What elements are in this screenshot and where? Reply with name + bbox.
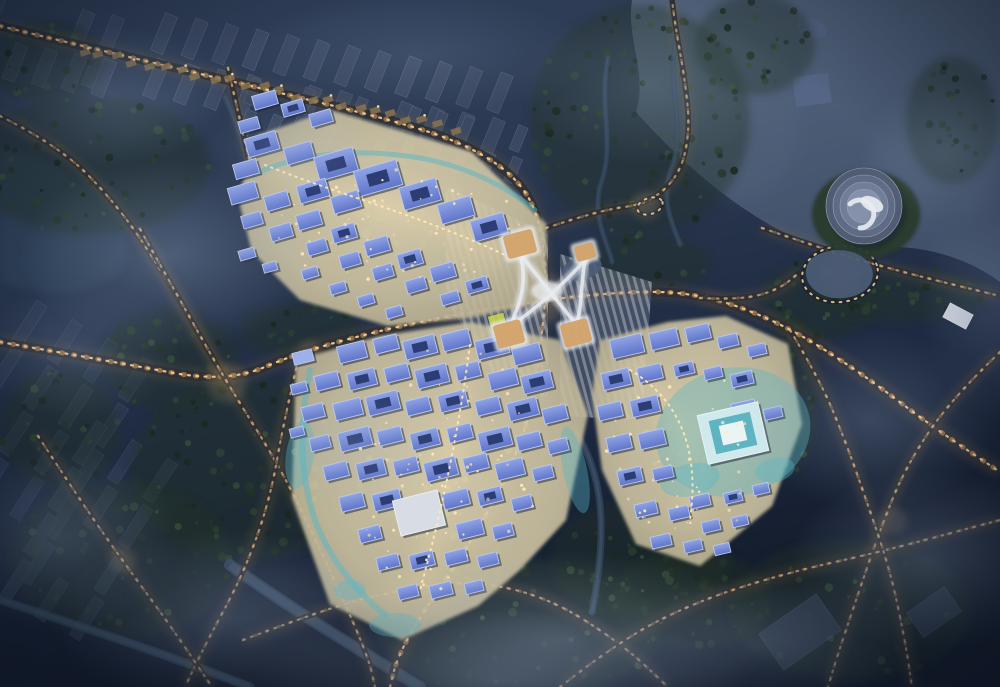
aerial-rendering-canvas xyxy=(0,0,1000,687)
aerial-rendering-figure xyxy=(0,0,1000,687)
vignette xyxy=(0,0,1000,687)
